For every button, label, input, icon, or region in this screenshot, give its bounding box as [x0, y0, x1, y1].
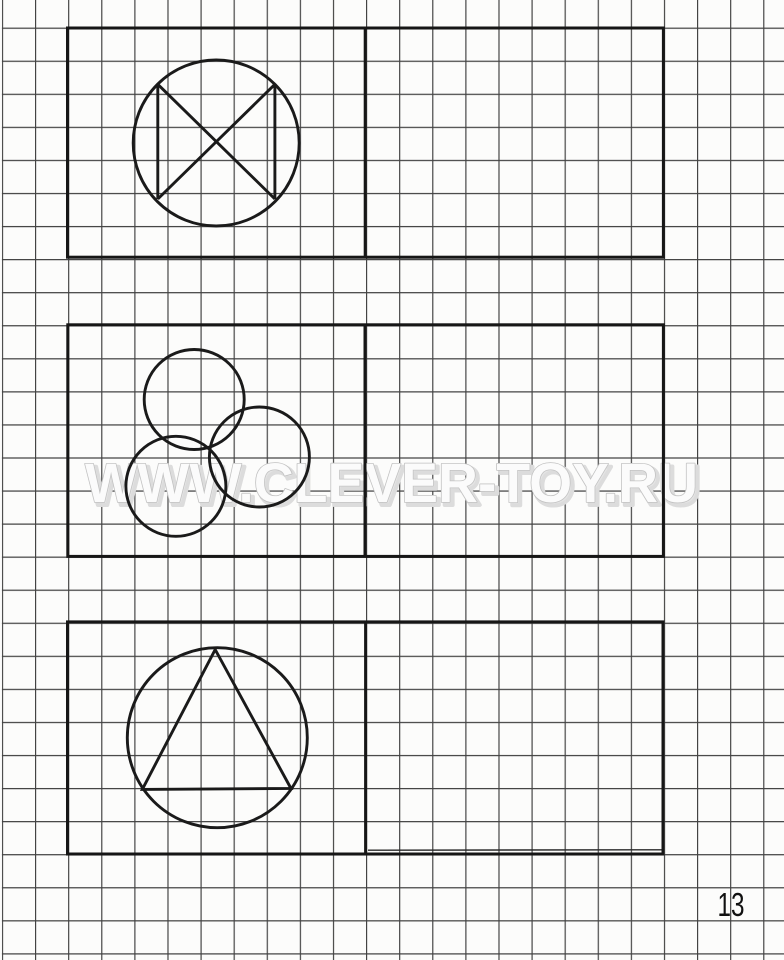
svg-text:13: 13	[718, 886, 745, 923]
svg-text:WWW.CLEVER-TOY.RU: WWW.CLEVER-TOY.RU	[85, 451, 698, 514]
